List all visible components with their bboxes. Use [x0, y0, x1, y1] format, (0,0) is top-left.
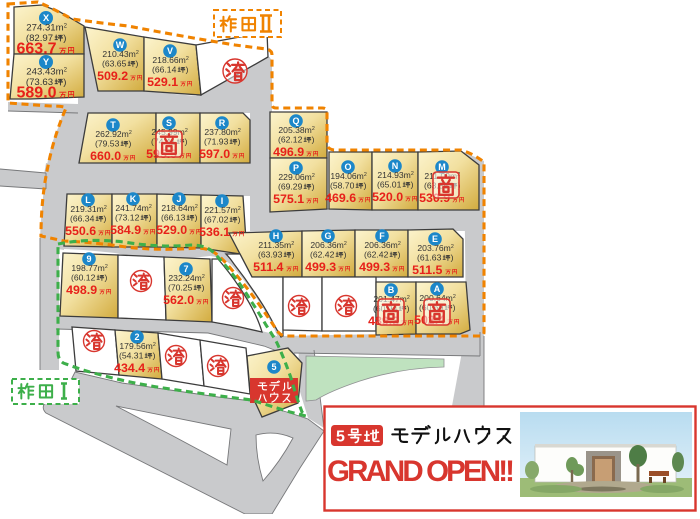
svg-text:): ): [63, 33, 66, 44]
svg-text:229.06m2: 229.06m2: [278, 172, 314, 182]
svg-text:(67.02: (67.02: [204, 215, 229, 225]
svg-text:): ): [186, 65, 189, 75]
svg-text:511.4: 511.4: [253, 260, 283, 274]
svg-text:206.36m2: 206.36m2: [310, 240, 346, 250]
svg-text:): ): [63, 77, 66, 88]
svg-text:): ): [451, 253, 454, 263]
svg-text:(66.14: (66.14: [152, 65, 177, 75]
svg-text:262.92m2: 262.92m2: [95, 129, 131, 139]
svg-text:562.0: 562.0: [163, 293, 194, 307]
svg-text:496.9: 496.9: [273, 145, 304, 159]
svg-text:243.43m2: 243.43m2: [26, 67, 67, 78]
svg-text:498.9: 498.9: [66, 283, 97, 297]
svg-text:550.6: 550.6: [65, 224, 96, 238]
svg-text:): ): [398, 250, 401, 260]
svg-text:(65.01: (65.01: [377, 180, 402, 190]
svg-text:): ): [411, 180, 414, 190]
svg-text:): ): [185, 137, 188, 147]
svg-text:237.80m2: 237.80m2: [204, 127, 240, 137]
svg-text:): ): [292, 250, 295, 260]
svg-text:(79.53: (79.53: [95, 139, 120, 149]
svg-text:(62.12: (62.12: [278, 135, 303, 145]
svg-text:): ): [105, 273, 108, 283]
svg-text:499.3: 499.3: [359, 260, 390, 274]
svg-text:): ): [153, 351, 156, 361]
svg-text:): ): [364, 181, 367, 191]
svg-text:520.0: 520.0: [372, 190, 403, 204]
svg-text:214.93m2: 214.93m2: [377, 170, 413, 180]
svg-text:536.1: 536.1: [199, 225, 230, 239]
svg-text:210.43m2: 210.43m2: [102, 49, 138, 59]
svg-text:198.77m2: 198.77m2: [71, 263, 107, 273]
svg-text:218.66m2: 218.66m2: [152, 55, 188, 65]
svg-text:509.2: 509.2: [97, 69, 128, 83]
svg-text:): ): [453, 303, 456, 313]
svg-text:584.9: 584.9: [110, 223, 141, 237]
svg-text:660.0: 660.0: [90, 149, 121, 163]
svg-text:(73.12: (73.12: [115, 213, 140, 223]
svg-text:(62.42: (62.42: [310, 250, 335, 260]
svg-text:206.36m2: 206.36m2: [364, 240, 400, 250]
svg-text:GRAND OPEN!!: GRAND OPEN!!: [327, 455, 515, 488]
svg-text:589.0: 589.0: [17, 85, 57, 102]
svg-text:211.35m2: 211.35m2: [258, 240, 294, 250]
svg-text:(71.93: (71.93: [204, 137, 229, 147]
svg-text:241.74m2: 241.74m2: [115, 203, 151, 213]
svg-text:221.57m2: 221.57m2: [204, 205, 240, 215]
svg-text:499.3: 499.3: [305, 260, 336, 274]
svg-text:): ): [238, 215, 241, 225]
svg-text:): ): [238, 137, 241, 147]
svg-text:511.5: 511.5: [412, 263, 442, 277]
svg-text:(58.70: (58.70: [330, 181, 355, 191]
svg-text:): ): [195, 213, 198, 223]
svg-text:218.64m2: 218.64m2: [161, 203, 197, 213]
svg-text:(69.29: (69.29: [278, 182, 303, 192]
svg-text:194.06m2: 194.06m2: [330, 171, 366, 181]
svg-text:): ): [312, 182, 315, 192]
svg-text:): ): [149, 213, 152, 223]
svg-text:575.1: 575.1: [273, 192, 304, 206]
svg-text:(66.34: (66.34: [70, 214, 95, 224]
svg-text:(63.65: (63.65: [102, 59, 127, 69]
svg-text:(62.42: (62.42: [364, 250, 389, 260]
svg-text:663.7: 663.7: [17, 41, 57, 58]
svg-text:529.1: 529.1: [147, 75, 178, 89]
svg-text:(63.93: (63.93: [258, 250, 283, 260]
svg-text:274.31m2: 274.31m2: [26, 23, 67, 34]
svg-text:): ): [104, 214, 107, 224]
svg-text:): ): [136, 59, 139, 69]
svg-text:232.24m2: 232.24m2: [168, 273, 204, 283]
svg-text:(54.31: (54.31: [119, 351, 144, 361]
svg-text:434.4: 434.4: [114, 361, 145, 375]
svg-text:5: 5: [336, 429, 345, 446]
svg-text:179.56m2: 179.56m2: [119, 341, 155, 351]
svg-text:): ): [129, 139, 132, 149]
svg-text:(60.12: (60.12: [71, 273, 96, 283]
svg-text:597.0: 597.0: [199, 147, 230, 161]
svg-text:219.31m2: 219.31m2: [70, 204, 106, 214]
svg-text:(66.13: (66.13: [161, 213, 186, 223]
svg-text:5: 5: [271, 362, 276, 372]
svg-text:): ): [312, 135, 315, 145]
svg-text:469.6: 469.6: [325, 191, 356, 205]
svg-text:): ): [344, 250, 347, 260]
svg-text:529.0: 529.0: [156, 223, 187, 237]
svg-text:(70.25: (70.25: [168, 283, 193, 293]
svg-text:205.38m2: 205.38m2: [278, 125, 314, 135]
svg-text:(61.63: (61.63: [417, 253, 442, 263]
svg-text:203.76m2: 203.76m2: [417, 243, 453, 253]
svg-text:): ): [202, 283, 205, 293]
svg-text:): ): [407, 304, 410, 314]
